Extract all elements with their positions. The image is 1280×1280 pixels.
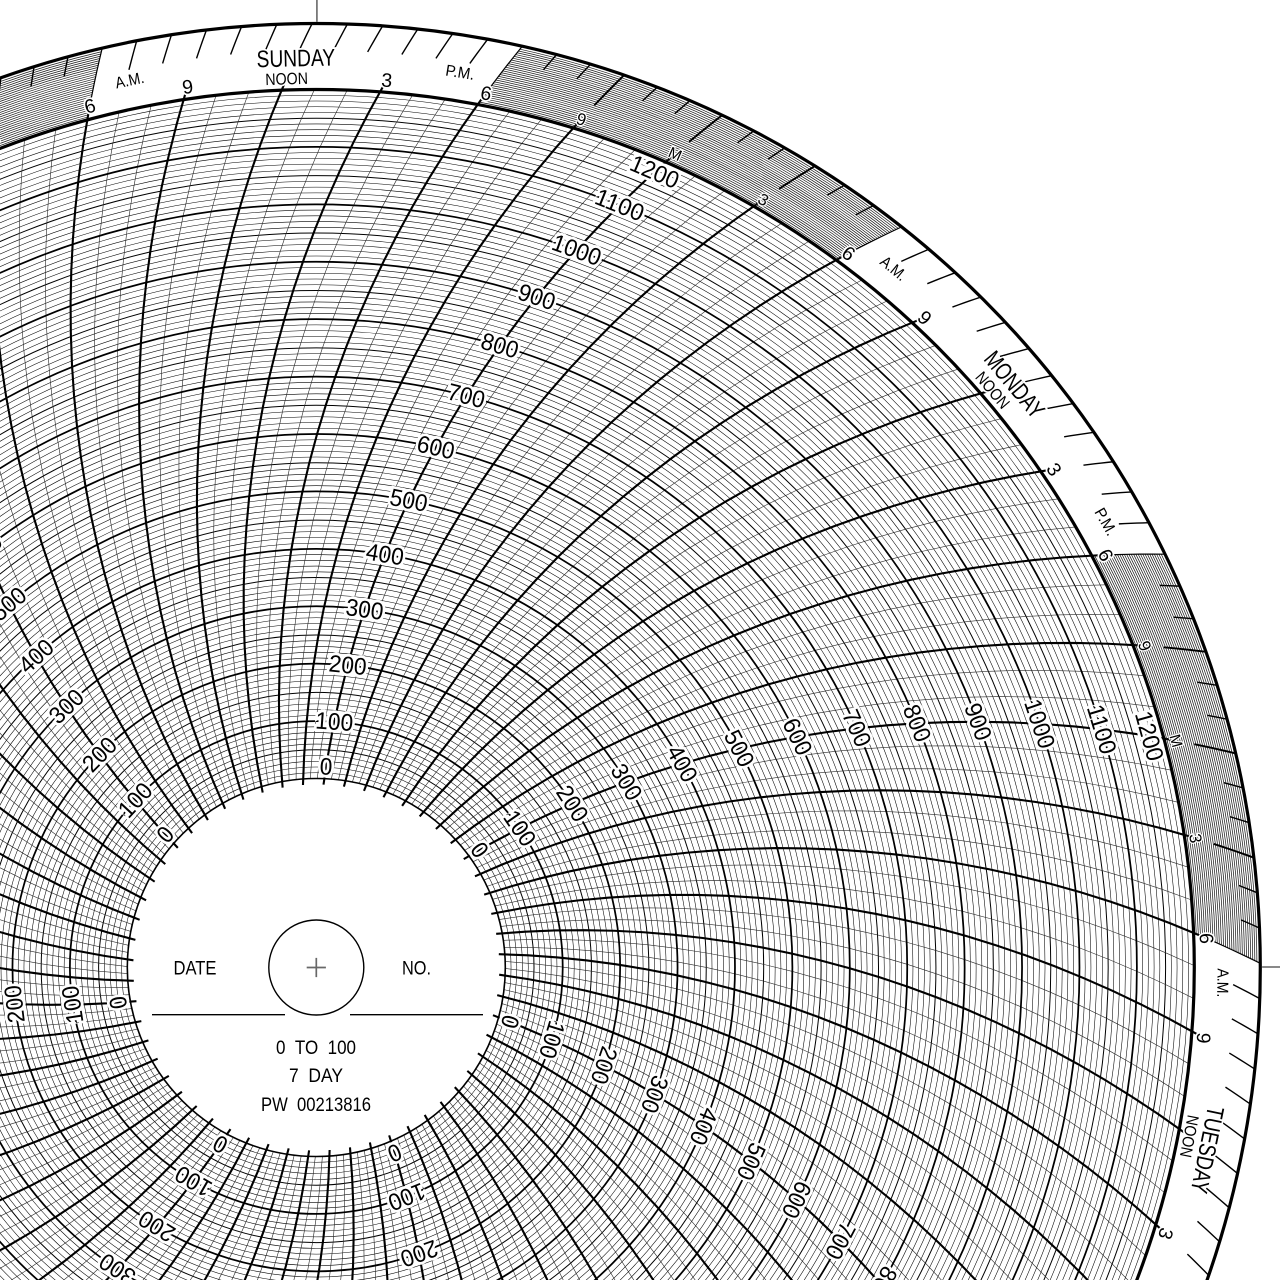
svg-text:200: 200	[0, 984, 31, 1025]
svg-text:100: 100	[57, 984, 89, 1025]
svg-text:A.M.: A.M.	[1213, 968, 1230, 997]
svg-text:200: 200	[327, 650, 367, 681]
svg-text:9: 9	[1192, 1032, 1215, 1045]
svg-text:300: 300	[344, 594, 385, 626]
svg-text:DATE: DATE	[174, 959, 217, 980]
svg-text:PW 00213816: PW 00213816	[261, 1095, 371, 1116]
svg-text:7 DAY: 7 DAY	[289, 1066, 343, 1087]
svg-text:0 TO 100: 0 TO 100	[276, 1038, 356, 1059]
svg-text:NOON: NOON	[265, 70, 308, 89]
svg-text:NO.: NO.	[402, 959, 431, 980]
svg-text:SUNDAY: SUNDAY	[256, 44, 335, 73]
svg-text:6: 6	[1195, 933, 1217, 945]
svg-text:0: 0	[319, 753, 333, 781]
svg-text:100: 100	[314, 707, 354, 737]
svg-text:3: 3	[380, 69, 393, 92]
